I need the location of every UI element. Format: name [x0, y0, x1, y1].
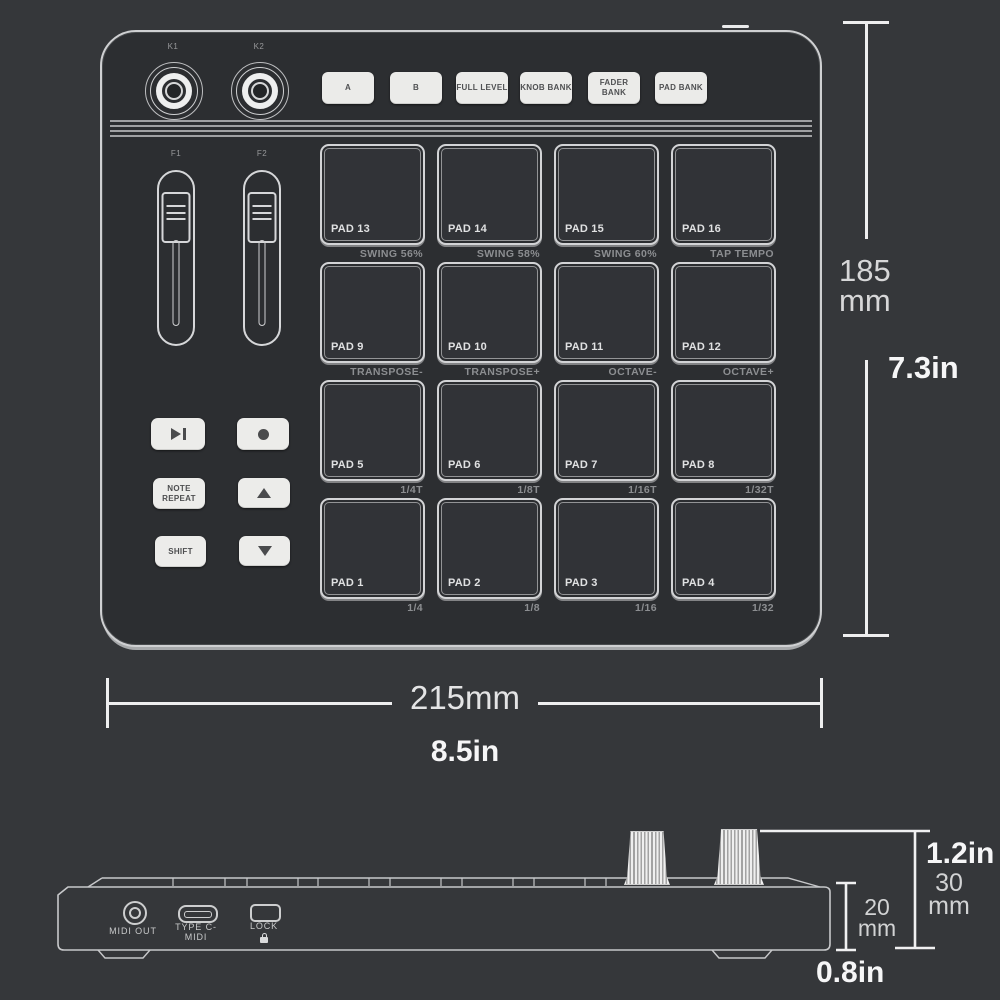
pad-sub-label: OCTAVE- [554, 363, 659, 380]
pad-cell: PAD 11 OCTAVE- [554, 262, 659, 380]
controller-top-view: K1 K2 A B FULL LEVEL KNOB BANK FADER BAN… [100, 30, 822, 647]
body-height-mm-unit: mm [846, 918, 908, 939]
up-button[interactable] [238, 478, 290, 508]
kensington-lock-slot [250, 904, 281, 922]
pad-1[interactable]: PAD 1 [320, 498, 425, 599]
pad-13[interactable]: PAD 13 [320, 144, 425, 245]
down-button[interactable] [239, 536, 290, 566]
pad-cell: PAD 1 1/4 [320, 498, 425, 616]
pad-label: PAD 8 [682, 459, 715, 471]
pad-6[interactable]: PAD 6 [437, 380, 542, 481]
knob-k2[interactable] [231, 62, 289, 120]
knob-height-mm: 30 mm [918, 872, 980, 918]
width-dim-inches: 8.5in [392, 735, 538, 769]
pad-label: PAD 6 [448, 459, 481, 471]
pad-cell: PAD 5 1/4T [320, 380, 425, 498]
height-mm-unit: mm [839, 286, 891, 316]
pad-3[interactable]: PAD 3 [554, 498, 659, 599]
button-b[interactable]: B [390, 72, 442, 104]
pad-label: PAD 4 [682, 577, 715, 589]
pad-label: PAD 11 [565, 341, 603, 353]
fader-grip-lines [167, 205, 186, 207]
button-pad-bank[interactable]: PAD BANK [655, 72, 707, 104]
width-dim-cap-right [820, 678, 823, 728]
fader-f2[interactable] [243, 170, 281, 346]
pad-sub-label: 1/8T [437, 481, 542, 498]
pad-cell: PAD 3 1/16 [554, 498, 659, 616]
pad-10[interactable]: PAD 10 [437, 262, 542, 363]
knob-height-mm-unit: mm [918, 895, 980, 918]
pad-sub-label: TAP TEMPO [671, 245, 776, 262]
pad-label: PAD 10 [448, 341, 487, 353]
record-button[interactable] [237, 418, 289, 450]
button-knob-bank[interactable]: KNOB BANK [520, 72, 572, 104]
knob-ring [156, 73, 192, 109]
pad-sub-label: SWING 60% [554, 245, 659, 262]
height-dim-inches: 7.3in [888, 350, 959, 386]
side-knob-right[interactable] [714, 829, 764, 885]
pad-label: PAD 15 [565, 223, 604, 235]
fader-f1[interactable] [157, 170, 195, 346]
knob-k1[interactable] [145, 62, 203, 120]
pad-sub-label: 1/4T [320, 481, 425, 498]
pad-sub-label: SWING 58% [437, 245, 542, 262]
pad-sub-label: 1/8 [437, 599, 542, 616]
height-dim-mm: 185 mm [839, 256, 891, 316]
pad-cell: PAD 7 1/16T [554, 380, 659, 498]
pad-sub-label: SWING 56% [320, 245, 425, 262]
knob-ring [150, 67, 198, 115]
pad-label: PAD 14 [448, 223, 487, 235]
knob-cap [165, 82, 183, 100]
pad-cell: PAD 15 SWING 60% [554, 144, 659, 262]
side-pad-edge-ticks [173, 878, 606, 886]
knob-cap [251, 82, 269, 100]
knob-k2-label: K2 [239, 42, 279, 51]
down-arrow-icon [258, 546, 272, 556]
pad-label: PAD 5 [331, 459, 364, 471]
knob-k1-label: K1 [153, 42, 193, 51]
pad-sub-label: OCTAVE+ [671, 363, 776, 380]
pad-sub-label: 1/32T [671, 481, 776, 498]
usb-c-port [178, 905, 218, 923]
pad-11[interactable]: PAD 11 [554, 262, 659, 363]
side-knob-left[interactable] [624, 831, 670, 885]
height-dim-cap-bottom [843, 634, 889, 637]
play-pause-button[interactable] [151, 418, 205, 450]
width-dim-line-left [108, 702, 392, 705]
pad-sub-label: 1/16T [554, 481, 659, 498]
lock-icon [260, 937, 268, 943]
fader-f1-label: F1 [156, 149, 196, 158]
fader-f2-label: F2 [242, 149, 282, 158]
pad-cell: PAD 8 1/32T [671, 380, 776, 498]
panel-divider-ridges [110, 120, 812, 137]
width-dim-line-right [538, 702, 821, 705]
pad-sub-label: 1/16 [554, 599, 659, 616]
pad-label: PAD 12 [682, 341, 721, 353]
fader-cap[interactable] [162, 192, 191, 243]
height-mm-value: 185 [839, 256, 891, 286]
shift-button[interactable]: SHIFT [155, 536, 206, 567]
record-icon [258, 429, 269, 440]
pad-sub-label: TRANSPOSE+ [437, 363, 542, 380]
pad-sub-label: TRANSPOSE- [320, 363, 425, 380]
pad-label: PAD 9 [331, 341, 364, 353]
pad-cell: PAD 6 1/8T [437, 380, 542, 498]
button-fader-bank[interactable]: FADER BANK [588, 72, 640, 104]
midi-out-jack-inner [129, 907, 141, 919]
pad-cell: PAD 12 OCTAVE+ [671, 262, 776, 380]
pad-label: PAD 7 [565, 459, 598, 471]
pad-label: PAD 1 [331, 577, 364, 589]
pad-cell: PAD 2 1/8 [437, 498, 542, 616]
pad-cell: PAD 4 1/32 [671, 498, 776, 616]
pad-sub-label: 1/32 [671, 599, 776, 616]
side-foot-left [98, 950, 150, 958]
play-pause-icon [171, 428, 186, 440]
controller-side-view: MIDI OUT TYPE C-MIDI LOCK 1.2in 30 mm 20… [40, 818, 1000, 998]
pad-cell: PAD 14 SWING 58% [437, 144, 542, 262]
usb-c-port-inner [184, 911, 212, 918]
pad-grid: PAD 13 SWING 56% PAD 14 SWING 58% PAD 15… [320, 144, 776, 616]
rear-port-notch [722, 25, 749, 28]
pad-15[interactable]: PAD 15 [554, 144, 659, 245]
pad-2[interactable]: PAD 2 [437, 498, 542, 599]
pad-9[interactable]: PAD 9 [320, 262, 425, 363]
pad-7[interactable]: PAD 7 [554, 380, 659, 481]
pad-label: PAD 13 [331, 223, 370, 235]
pad-label: PAD 2 [448, 577, 481, 589]
up-arrow-icon [257, 488, 271, 498]
pad-12[interactable]: PAD 12 [671, 262, 776, 363]
height-dim-line-upper [865, 22, 868, 239]
product-dimension-diagram: { "colors":{ "background":"#35373a", "de… [0, 0, 1000, 1000]
width-dim-mm: 215mm [392, 679, 538, 717]
pad-cell: PAD 9 TRANSPOSE- [320, 262, 425, 380]
button-a[interactable]: A [322, 72, 374, 104]
usb-c-label: TYPE C-MIDI [170, 922, 222, 942]
midi-out-jack [123, 901, 147, 925]
height-dim-line-lower [865, 360, 868, 636]
body-height-inches: 0.8in [816, 956, 884, 990]
pad-16[interactable]: PAD 16 [671, 144, 776, 245]
side-foot-right [712, 950, 772, 958]
lock-label: LOCK [234, 921, 294, 931]
pad-14[interactable]: PAD 14 [437, 144, 542, 245]
pad-label: PAD 3 [565, 577, 598, 589]
pad-sub-label: 1/4 [320, 599, 425, 616]
knob-ring [242, 73, 278, 109]
knob-height-inches: 1.2in [926, 837, 994, 871]
pad-cell: PAD 10 TRANSPOSE+ [437, 262, 542, 380]
fader-track [173, 240, 180, 326]
side-back-edge [88, 878, 820, 887]
pad-5[interactable]: PAD 5 [320, 380, 425, 481]
fader-grip-lines [253, 205, 272, 207]
pad-cell: PAD 16 TAP TEMPO [671, 144, 776, 262]
midi-out-label: MIDI OUT [93, 926, 173, 936]
pad-label: PAD 16 [682, 223, 721, 235]
fader-track [259, 240, 266, 326]
knob-ring [236, 67, 284, 115]
button-full-level[interactable]: FULL LEVEL [456, 72, 508, 104]
note-repeat-button[interactable]: NOTE REPEAT [153, 478, 205, 509]
pad-cell: PAD 13 SWING 56% [320, 144, 425, 262]
pad-4[interactable]: PAD 4 [671, 498, 776, 599]
fader-cap[interactable] [248, 192, 277, 243]
pad-8[interactable]: PAD 8 [671, 380, 776, 481]
body-height-mm: 20 mm [846, 897, 908, 939]
